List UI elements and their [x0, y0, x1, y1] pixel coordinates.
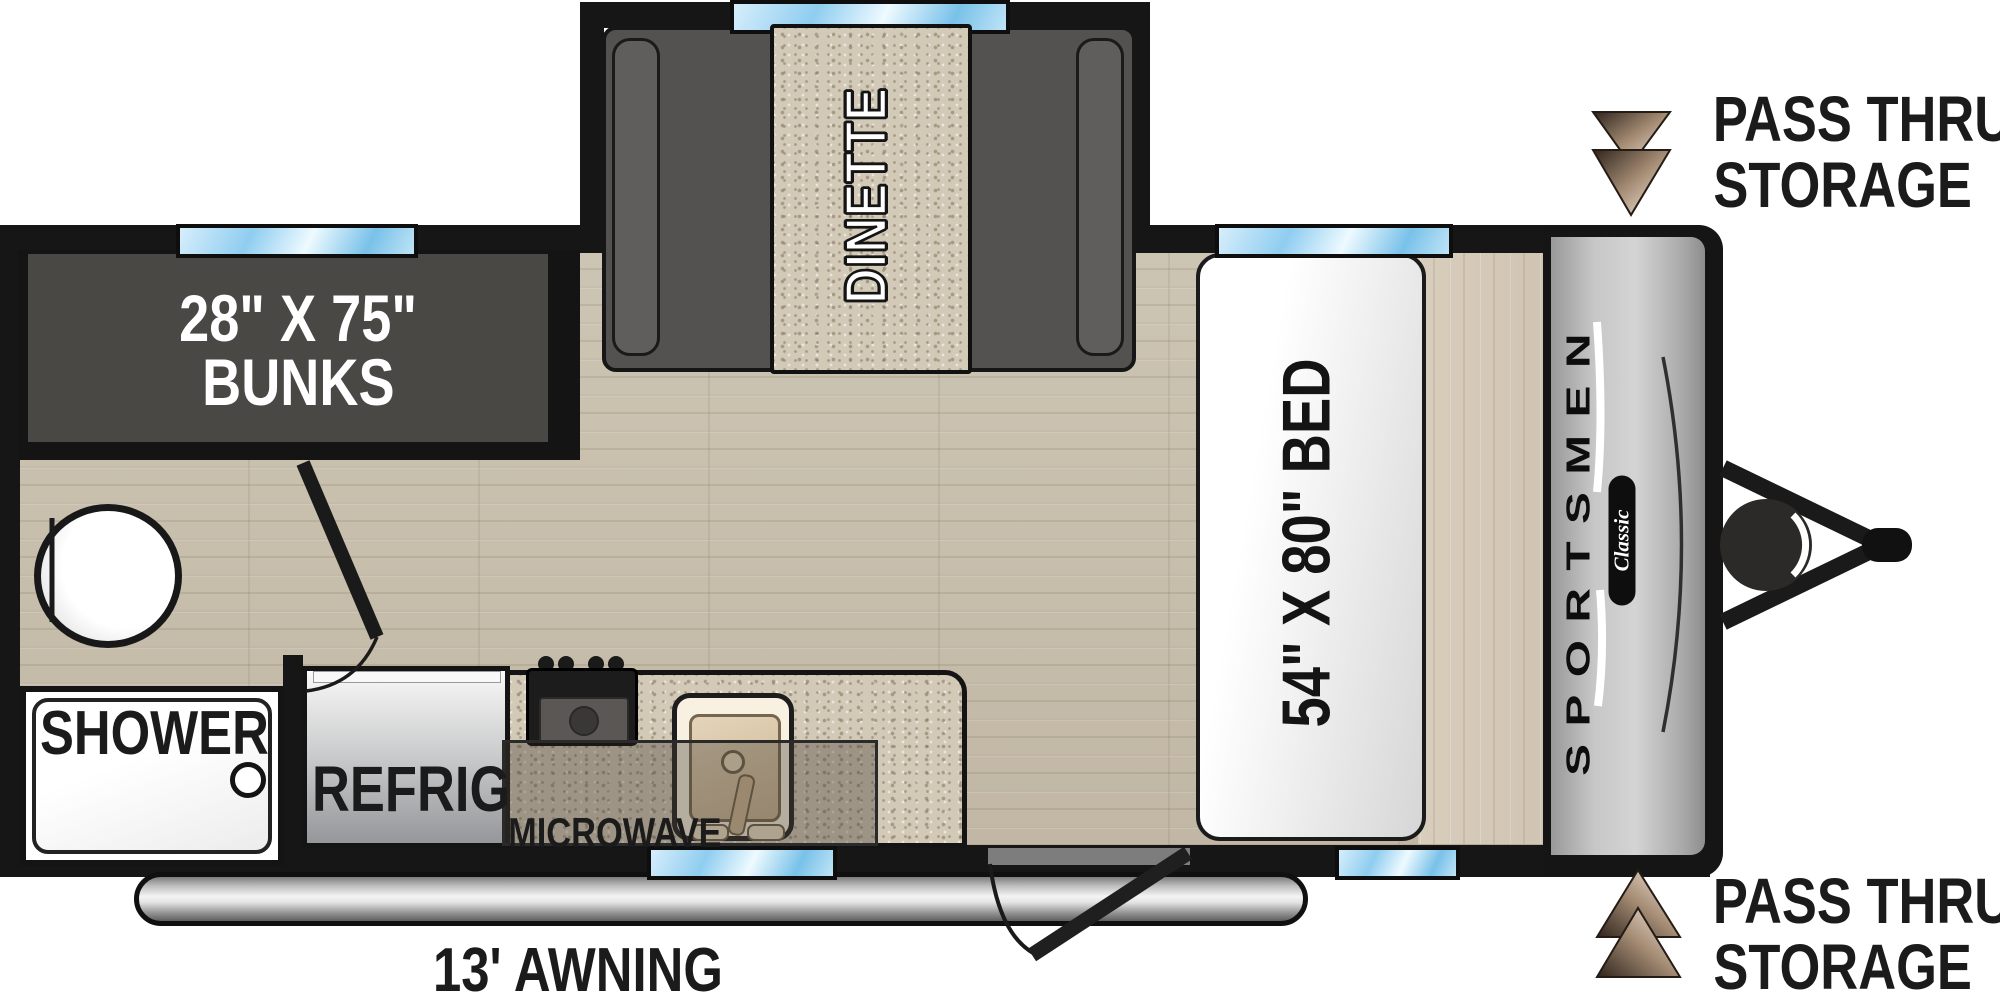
- pass-thru-arrow-down-icon: [1593, 112, 1670, 215]
- pass-thru-bottom-line1: PASS THRU: [1713, 868, 2000, 934]
- awning-label: 13' AWNING: [433, 940, 787, 996]
- bunks-label: 28" X 75" BUNKS: [58, 286, 538, 414]
- shower-label: SHOWER: [40, 703, 319, 765]
- bunks-label-line2: BUNKS: [202, 350, 394, 414]
- bathroom-door-icon: [303, 463, 377, 691]
- bed-label: 54" X 80" BED: [1196, 253, 1418, 833]
- dinette-label: DINETTE: [770, 24, 964, 366]
- pass-thru-storage-bottom-label: PASS THRU STORAGE: [1680, 868, 2000, 996]
- pass-thru-arrow-up-icon: [1597, 870, 1680, 977]
- entry-door-swing-icon: [990, 853, 1188, 955]
- pass-thru-bottom-line2: STORAGE: [1713, 934, 1972, 996]
- brand-series-badge: Classic: [1609, 476, 1636, 606]
- pass-thru-storage-top-label: PASS THRU STORAGE: [1680, 86, 2000, 218]
- pass-thru-top-line2: STORAGE: [1713, 152, 1972, 218]
- pass-thru-top-line1: PASS THRU: [1713, 86, 2000, 152]
- floorplan-canvas: 28" X 75" BUNKS DINETTE 54" X 80" BED SH…: [0, 0, 2000, 996]
- brand-label: SPORTSMEN: [1551, 237, 1607, 855]
- microwave-label: MICROWAVE: [508, 812, 769, 854]
- trailer-tongue-icon: [1720, 468, 1912, 622]
- bunks-label-line1: 28" X 75": [179, 286, 417, 350]
